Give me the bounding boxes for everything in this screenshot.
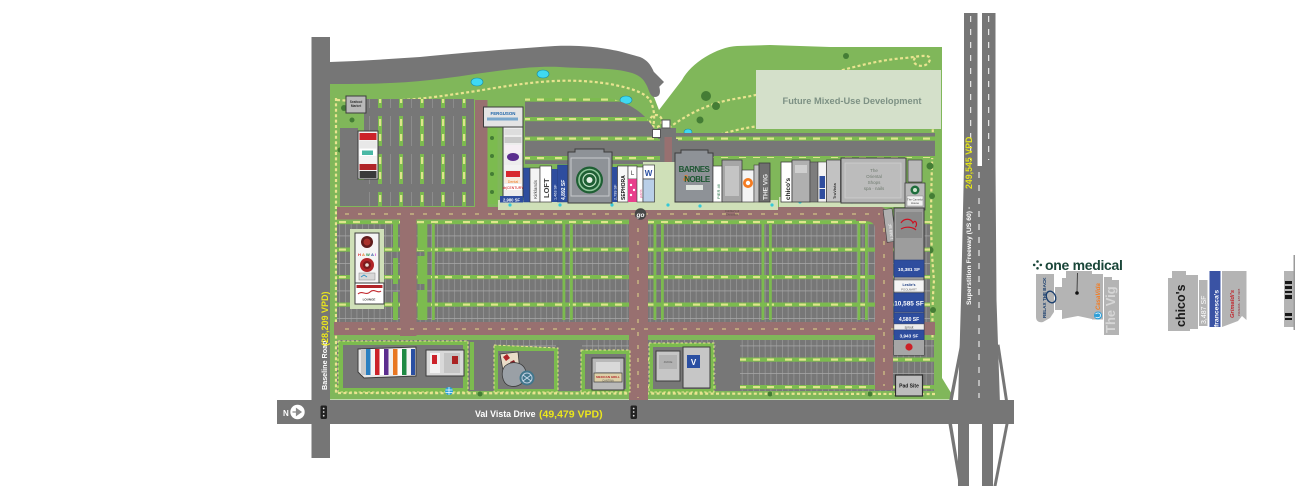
svg-text:4,580 SF: 4,580 SF (899, 317, 919, 323)
svg-text:POOLMART: POOLMART (901, 288, 917, 292)
svg-text:3,487 SF: 3,487 SF (1201, 296, 1208, 324)
svg-text:Kirklands: Kirklands (533, 179, 538, 199)
svg-text:249,545 VPD: 249,545 VPD (964, 137, 974, 189)
svg-text:one medical: one medical (1045, 257, 1123, 273)
svg-text:H: H (358, 252, 361, 257)
svg-text:Dental: Dental (508, 180, 519, 184)
svg-text:Pad Site: Pad Site (899, 384, 919, 390)
svg-text:SEPHORA: SEPHORA (621, 175, 627, 200)
svg-text:W: W (366, 252, 370, 257)
svg-text:Baseline Road: Baseline Road (320, 340, 329, 390)
svg-text:go: go (636, 212, 645, 219)
svg-text:PIZZERIA · EST 1905: PIZZERIA · EST 1905 (1237, 288, 1241, 316)
svg-text:The: The (870, 168, 878, 173)
svg-text:A: A (362, 252, 365, 257)
svg-text:Oriental: Oriental (866, 174, 882, 179)
svg-text:House: House (911, 201, 920, 205)
svg-text:1,463 SF: 1,463 SF (554, 184, 558, 200)
svg-text:LOFT: LOFT (542, 178, 551, 198)
svg-text:THE VIG: THE VIG (763, 174, 770, 200)
svg-text:cb|CENTURY: cb|CENTURY (503, 186, 525, 190)
svg-text:Market: Market (351, 104, 362, 108)
svg-text:The Vig: The Vig (1103, 286, 1118, 333)
svg-text:3,943 SF: 3,943 SF (900, 334, 919, 339)
svg-text:chico's: chico's (1174, 284, 1188, 327)
svg-text:Shops: Shops (868, 180, 882, 185)
svg-text:MEXICAN GRILL: MEXICAN GRILL (596, 375, 620, 379)
svg-text:francesca's: francesca's (1214, 290, 1221, 327)
svg-text:JUICE: JUICE (664, 360, 673, 364)
svg-text:PIER 46: PIER 46 (716, 183, 721, 199)
svg-text:Val Vista Drive: Val Vista Drive (475, 409, 536, 419)
svg-text:CasaVida: CasaVida (1096, 283, 1102, 310)
svg-text:W: W (645, 169, 653, 178)
svg-text:paris: paris (638, 189, 643, 199)
svg-text:10,585 SF: 10,585 SF (894, 301, 924, 308)
svg-text:TruVista: TruVista (832, 183, 837, 199)
svg-text:2,980 SF: 2,980 SF (503, 198, 520, 203)
svg-text:Chocolate: Chocolate (726, 213, 739, 217)
svg-text:chico's: chico's (785, 177, 792, 200)
svg-text:LOUNGE: LOUNGE (363, 298, 376, 302)
svg-text:Superstition Freeway (US 60) -: Superstition Freeway (US 60) - (966, 207, 973, 305)
svg-text:NOBLE: NOBLE (684, 175, 711, 184)
svg-text:Future Mixed-Use Development: Future Mixed-Use Development (783, 96, 922, 106)
svg-text:10,381 SF: 10,381 SF (898, 267, 920, 273)
svg-text:V: V (691, 358, 697, 367)
svg-text:4,892 SF: 4,892 SF (561, 180, 567, 200)
svg-text:(28,209 VPD): (28,209 VPD) (320, 291, 330, 346)
svg-text:(49,479 VPD): (49,479 VPD) (539, 409, 603, 421)
svg-text:CANTINA: CANTINA (602, 379, 614, 383)
svg-text:Grimaldi's: Grimaldi's (1230, 289, 1236, 318)
svg-text:Leslie's: Leslie's (902, 283, 915, 287)
svg-text:spa · nails: spa · nails (864, 186, 885, 191)
svg-text:N: N (283, 409, 289, 418)
svg-text:sprout: sprout (905, 326, 914, 330)
svg-text:I: I (375, 252, 376, 257)
svg-text:FERGUSON: FERGUSON (491, 111, 516, 116)
svg-text:2,799 SF: 2,799 SF (614, 184, 618, 200)
svg-text:A: A (371, 252, 374, 257)
